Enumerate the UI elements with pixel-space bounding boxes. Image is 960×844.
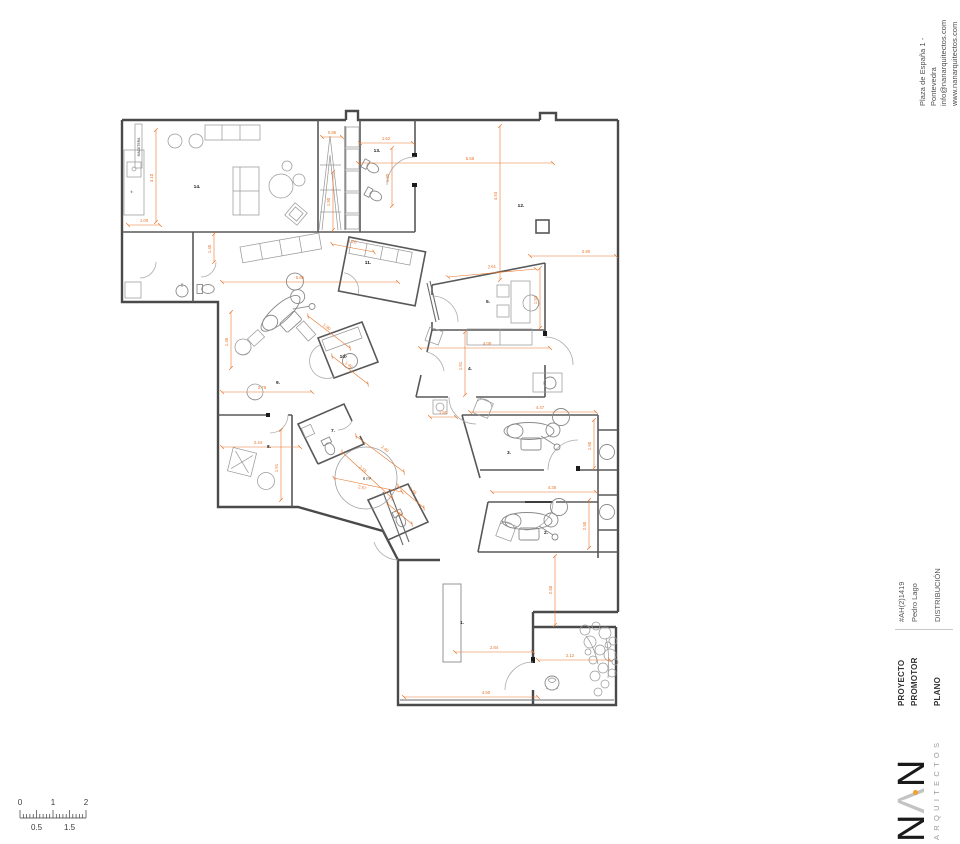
room11-cabinets [349,241,412,266]
title-block: PROYECTO #AH(2)1419 PROMOTOR Pedro Lago … [897,558,951,706]
dim-label: 0.86 [328,130,337,135]
scale-bar: 0120.51.5 [8,794,104,836]
logo-subtitle: ARQUITECTOS [932,728,941,840]
room-label: 13. [374,148,381,154]
sanitary-fixtures [125,159,615,529]
reception-furniture [443,584,559,690]
nan-logo: NΛN ARQUITECTOS [893,728,951,842]
dim-label: 4.47 [536,405,545,410]
room-label: 4. [468,366,472,372]
scale-mark: 0.5 [31,823,43,832]
room-label: 3. [507,450,511,456]
room-label: 12. [518,203,525,209]
dim-label: 1.91 [458,361,463,370]
dim-label: 2.61 [487,264,496,270]
office-furniture [425,281,562,392]
dim-line [342,452,392,498]
dim-label: 1.45 [224,337,229,346]
dim-label: 2.44 [254,440,263,445]
room-label: 9. [276,380,280,386]
room-label: 8. [267,444,271,450]
dim-label: 4.50 [482,690,491,695]
dim-label: 4.93 [493,191,498,200]
dim-label: 5.58 [466,156,475,161]
door-jambs [266,153,580,663]
staircase [319,127,359,230]
plan-label: PLANO [933,634,942,706]
dim-label: 2.67 [358,484,368,491]
dim-label: 2.90 [582,249,591,254]
room-label: 5. [486,299,490,305]
dim-label: 2.16 [358,464,368,474]
logo-letters: NΛN [893,759,931,842]
dim-line [448,269,536,277]
dim-label: 1.20 [348,238,358,245]
scale-mark: 0 [18,798,23,807]
promoter-label: PROMOTOR [910,634,919,706]
dim-label: 1.91 [274,463,279,472]
room-label: 10. [340,354,347,360]
dim-label: 2.78 [258,385,267,390]
floor-plan: 1.003.100.861.621.801.905.584.932.905.65… [0,0,960,844]
dim-label: 1.80 [385,173,390,182]
dim-label: 5.65 [296,275,305,280]
dim-label: 1.90 [587,441,592,450]
dim-label: 1.93 [533,295,538,304]
room-label: 1. [460,620,464,626]
plant [580,622,618,696]
room-label: 7. [331,428,335,434]
dim-label: 2.50 [582,521,587,530]
dim-label: 2.12 [566,653,575,658]
dim-line [332,356,368,384]
dim-label: 4.08 [483,341,492,346]
project-label: PROYECTO [897,634,906,706]
promoter-name: Pedro Lago [910,583,919,634]
plan-annotation: MACETERA [137,137,141,157]
hall-furniture [227,337,516,541]
title-block-divider [895,629,953,630]
logo-caret: Λ [891,787,933,813]
dim-label: 2.84 [490,645,499,650]
dim-label: 2.40 [380,444,390,453]
plan-name: DISTRIBUCIÓN [933,568,942,634]
room-label: 11. [365,260,371,266]
dim-label: 2.50 [548,585,553,594]
scale-mark: 1 [51,798,56,807]
address-line: info@nanarquitectos.com [939,6,950,106]
dim-label: 1.62 [382,136,391,141]
dental-chairs [247,270,570,540]
plan-annotation: 6 m² [363,476,372,481]
project-code: #AH(2)1419 [897,582,906,634]
dim-label: 1.45 [207,244,212,253]
room-label: 2. [544,530,548,536]
studio-address: Plaza de España 1 - Pontevedra info@nana… [918,6,952,106]
room14-furniture [124,124,322,263]
door-arcs [140,157,578,690]
dim-label: 4.35 [548,485,557,490]
scale-mark: 2 [84,798,89,807]
address-line: www.nanarquitectos.com [950,6,960,106]
dim-label: 3.10 [149,173,154,182]
room-label: 14. [194,184,201,190]
dim-label: 1.00 [140,218,149,223]
scale-mark: 1.5 [64,823,76,832]
dim-line [332,244,374,252]
dim-label: 1.90 [326,197,331,206]
logo-dot [913,790,918,795]
address-line: Plaza de España 1 - Pontevedra [918,6,939,106]
drawing-sheet: { "sheet": { "address_lines": ["Plaza de… [0,0,960,844]
plan-annotation: fr. [131,190,134,194]
dim-label: 1.50 [439,410,448,415]
